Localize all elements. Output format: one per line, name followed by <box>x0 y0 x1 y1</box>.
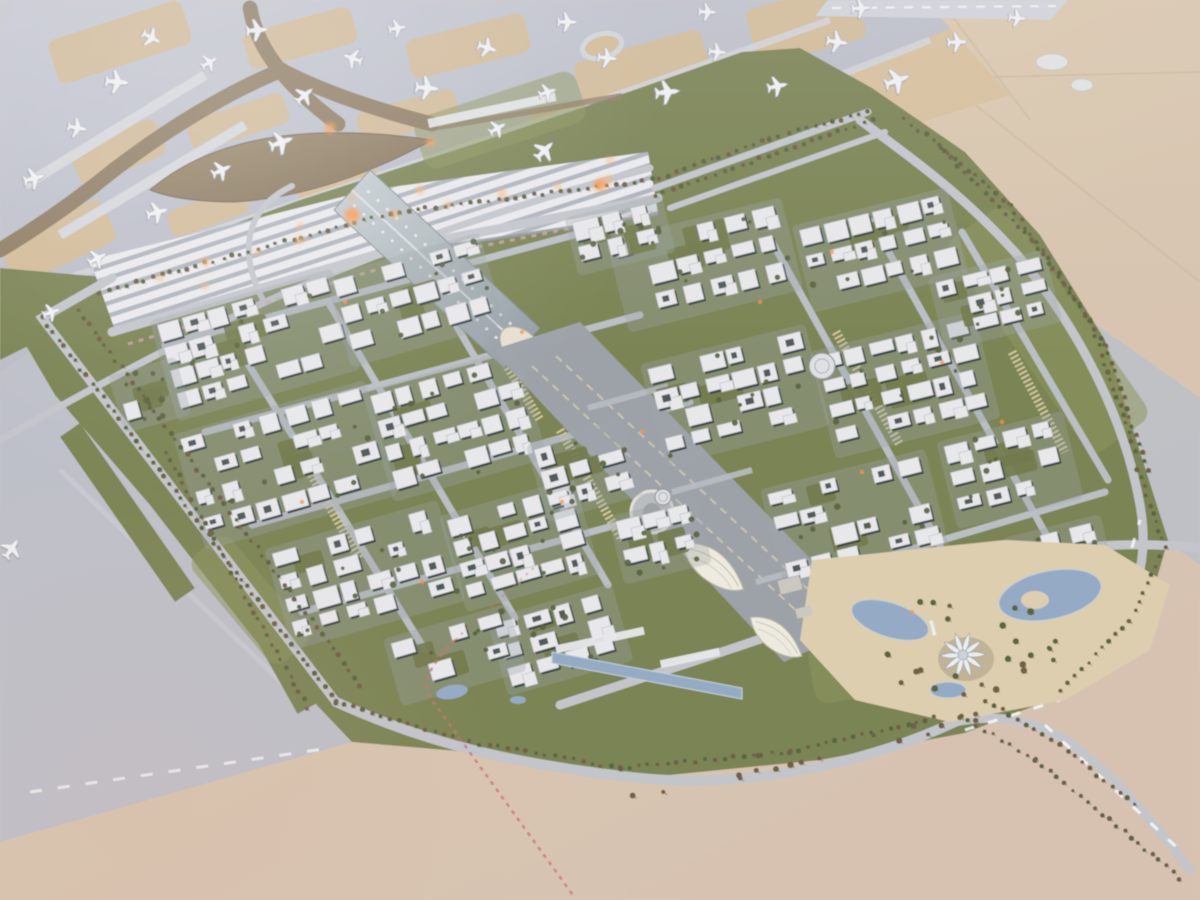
haze-overlay <box>0 0 1200 900</box>
model-photo-svg <box>0 0 1200 900</box>
scale-model-photo <box>0 0 1200 900</box>
